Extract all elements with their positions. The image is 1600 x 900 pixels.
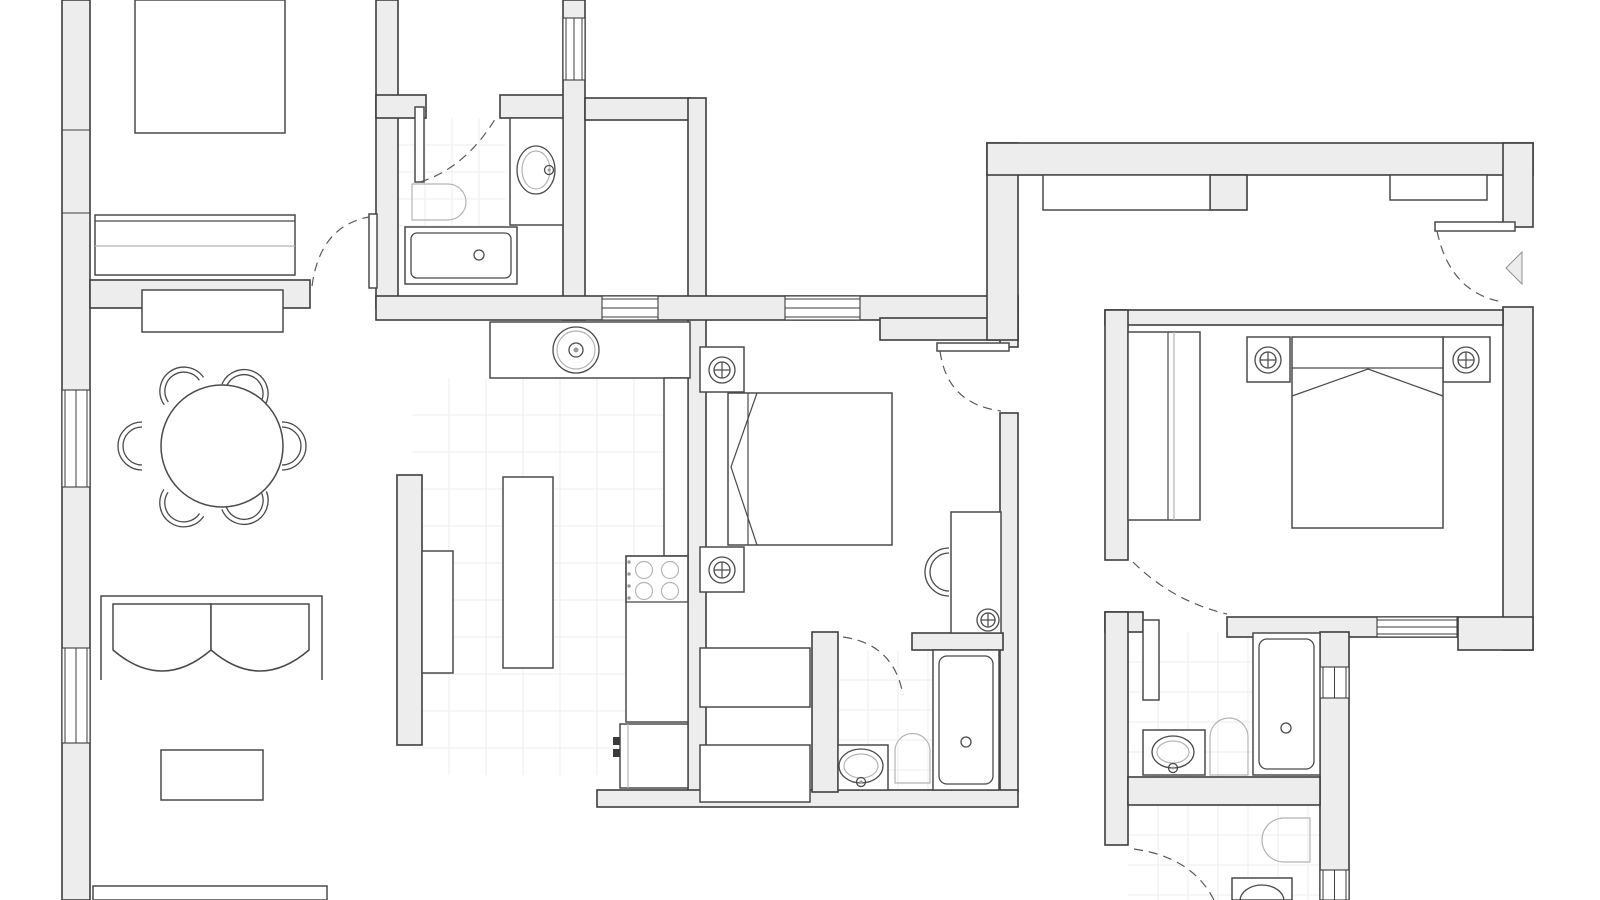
coffee-table: [161, 750, 263, 800]
stove-knob-3: [627, 584, 631, 588]
floor-plan-page: [0, 0, 1600, 900]
dining-table: [161, 385, 283, 507]
kitchen-counter-right: [664, 378, 688, 556]
entrance-door-swing-triangle: [1506, 252, 1522, 284]
wall-north-band: [376, 296, 1018, 320]
sofa-seat-right: [211, 604, 309, 671]
door-bedroom3-arc: [1133, 562, 1227, 614]
wall-right-outer-upper: [1503, 143, 1533, 227]
door-bath1-leaf: [415, 107, 424, 182]
sink-bath3-faucet-dot: [1172, 767, 1175, 770]
wall-corner-bottom-right: [1458, 617, 1533, 650]
oven-handle-2: [613, 749, 620, 757]
bed-bedroom2: [728, 393, 892, 545]
stove-knob-1: [627, 560, 631, 564]
wall-bedroom3-top: [1105, 310, 1503, 325]
oven: [620, 724, 688, 788]
wall-hall-closet-pier: [1210, 175, 1247, 210]
dresser-room1: [95, 215, 295, 275]
window-bath3: [1320, 667, 1349, 698]
bathtub-bath3: [1253, 633, 1320, 775]
entrance-door-leaf: [1435, 222, 1515, 231]
window-shaft: [563, 18, 585, 80]
dining-chair-4: [282, 422, 306, 470]
kitchen-counter-stove: [626, 556, 688, 722]
door-bedroom2-arc: [940, 351, 1001, 411]
floor-bath-top: [398, 118, 505, 227]
bed-bedroom3: [1292, 337, 1443, 528]
wall-bath3-left: [1105, 612, 1128, 845]
window-bedroom3: [1377, 617, 1457, 637]
oven-handle-1: [613, 737, 620, 745]
sink-bath1-faucet-dot: [548, 169, 551, 172]
dining-chair-3: [118, 422, 142, 470]
door-room1-arc: [312, 217, 369, 286]
window-bedroom2: [785, 296, 860, 320]
window-living-1: [62, 390, 90, 487]
wall-bedroom3-left: [1105, 310, 1128, 560]
dresser-bedroom2-a: [700, 648, 810, 707]
wardrobe-bedroom3: [1128, 332, 1200, 520]
dresser-bedroom2-b: [700, 745, 810, 802]
wall-kitchen-partition: [397, 475, 422, 745]
hall-closet: [1043, 175, 1210, 210]
door-room1-leaf: [369, 214, 377, 288]
desk-chair: [925, 548, 949, 596]
wall-corridor-left-lower: [1000, 413, 1018, 792]
door-bedroom2-leaf: [937, 343, 1009, 351]
bathtub-bath1: [405, 227, 517, 284]
window-living-2: [62, 648, 90, 743]
tv-bench: [93, 886, 327, 900]
kitchen-faucet-dot: [574, 348, 579, 353]
kitchen-counter-top: [490, 322, 690, 378]
wall-bath2-top: [912, 633, 1003, 650]
window-kitchen: [602, 296, 658, 320]
bath3-door-jamb: [1143, 620, 1159, 700]
wall-room1-right: [376, 0, 398, 308]
bathtub-middle: [933, 650, 999, 790]
floor-plan-canvas: [0, 0, 1600, 900]
sideboard-living: [142, 290, 283, 332]
wall-bath3-bath4-divider: [1128, 777, 1320, 805]
stove-knob-4: [627, 596, 631, 600]
kitchen-tall-cabinet: [422, 551, 453, 673]
kitchen-island: [503, 477, 553, 668]
wall-shaft-top: [585, 98, 690, 120]
entrance-door-arc: [1437, 231, 1503, 302]
wall-right-outer: [1503, 307, 1533, 650]
sofa-seat-left: [113, 604, 211, 671]
stove-knob-2: [627, 572, 631, 576]
window-bath4: [1320, 870, 1349, 900]
entry-shoe-closet: [1390, 175, 1487, 200]
wall-bath2-divider: [812, 632, 838, 792]
wall-hall-top: [987, 143, 1533, 175]
sink-middle-faucet-dot: [860, 781, 863, 784]
bed-room1: [135, 0, 285, 133]
